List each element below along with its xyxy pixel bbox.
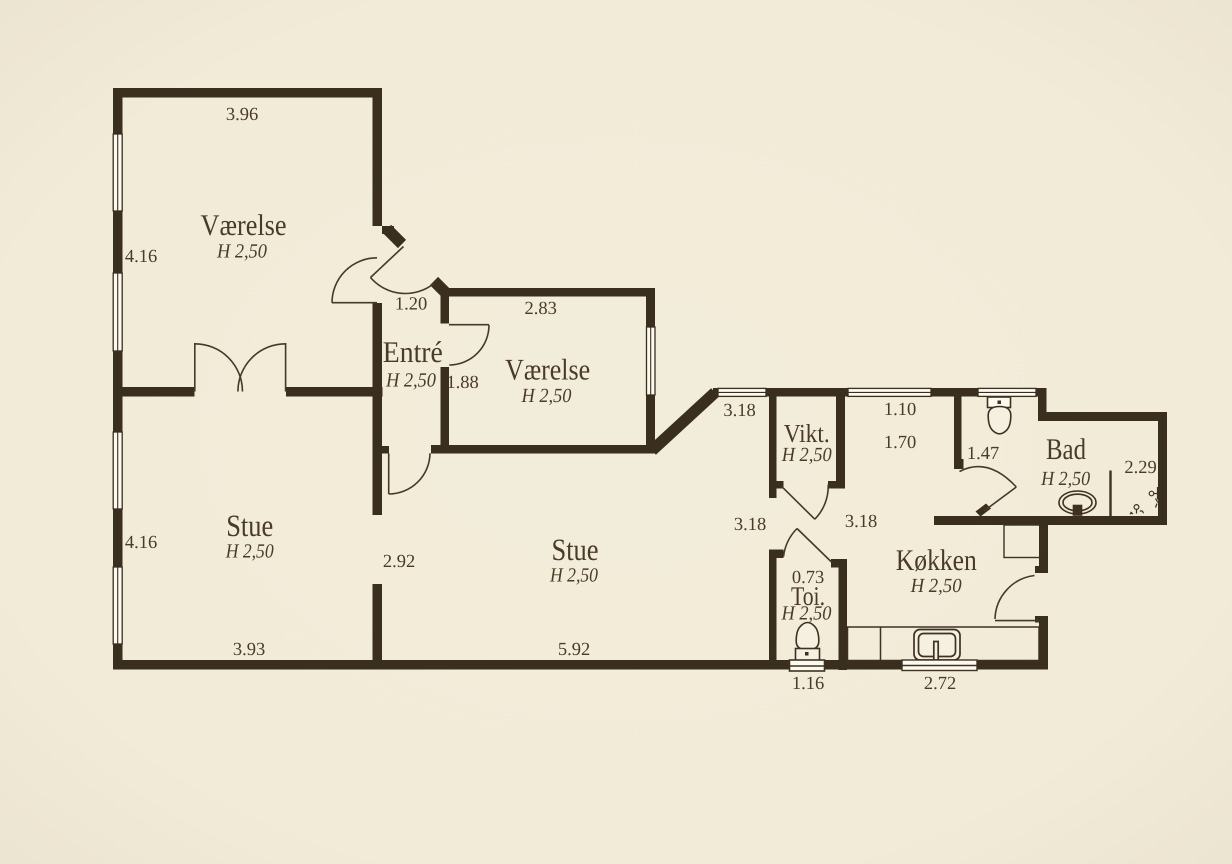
svg-text:1.16: 1.16: [792, 674, 824, 694]
svg-text:3.18: 3.18: [845, 512, 877, 532]
svg-text:3.96: 3.96: [226, 105, 258, 125]
svg-text:1.70: 1.70: [884, 433, 916, 453]
svg-text:1.47: 1.47: [967, 444, 999, 464]
svg-text:1.88: 1.88: [446, 373, 478, 393]
svg-text:H 2,50: H 2,50: [781, 603, 832, 625]
svg-text:Køkken: Køkken: [896, 544, 977, 577]
svg-text:3.18: 3.18: [734, 515, 766, 535]
svg-text:H 2,50: H 2,50: [781, 444, 832, 466]
svg-text:Entré: Entré: [383, 336, 443, 369]
svg-text:3.93: 3.93: [233, 640, 265, 660]
svg-text:4.16: 4.16: [125, 247, 157, 267]
svg-text:1.10: 1.10: [884, 400, 916, 420]
svg-text:2.83: 2.83: [525, 299, 557, 319]
svg-text:5.92: 5.92: [558, 640, 590, 660]
svg-text:H 2,50: H 2,50: [225, 541, 274, 563]
svg-text:3.18: 3.18: [723, 401, 755, 421]
svg-text:H 2,50: H 2,50: [1040, 468, 1090, 490]
svg-text:Bad: Bad: [1046, 433, 1086, 466]
svg-text:Værelse: Værelse: [505, 354, 590, 387]
svg-text:4.16: 4.16: [125, 533, 157, 553]
svg-text:Værelse: Værelse: [201, 209, 287, 242]
svg-text:H 2,50: H 2,50: [216, 241, 267, 263]
svg-text:Stue: Stue: [226, 508, 273, 543]
svg-text:H 2,50: H 2,50: [910, 575, 962, 597]
svg-text:2.29: 2.29: [1124, 458, 1156, 478]
svg-text:Stue: Stue: [552, 532, 599, 567]
svg-text:1.20: 1.20: [395, 295, 427, 315]
svg-text:2.72: 2.72: [924, 674, 956, 694]
svg-text:2.92: 2.92: [383, 552, 415, 572]
svg-text:H 2,50: H 2,50: [385, 370, 436, 392]
svg-text:H 2,50: H 2,50: [521, 385, 572, 407]
svg-text:H 2,50: H 2,50: [549, 565, 598, 587]
svg-text:0.73: 0.73: [792, 568, 824, 588]
